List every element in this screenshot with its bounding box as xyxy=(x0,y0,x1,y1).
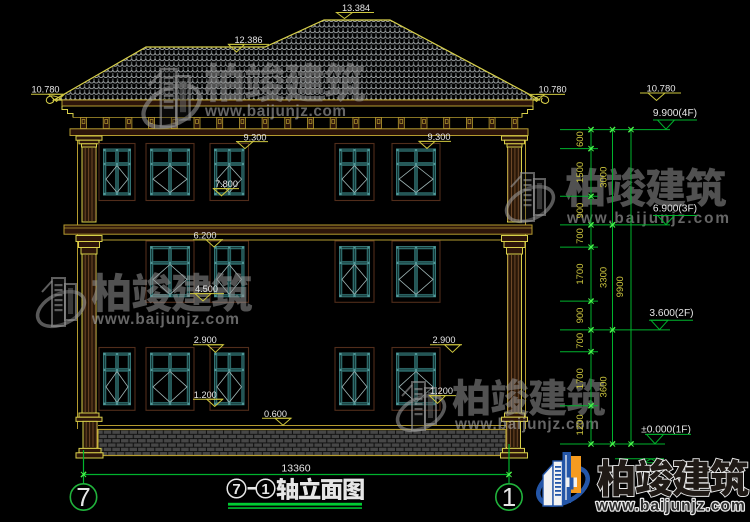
svg-text:13.384: 13.384 xyxy=(342,3,370,13)
svg-text:10.780: 10.780 xyxy=(31,84,59,94)
svg-text:www.baijunjz.com: www.baijunjz.com xyxy=(595,498,746,515)
svg-text:0.600: 0.600 xyxy=(264,409,287,419)
svg-text:13360: 13360 xyxy=(281,463,310,475)
svg-text:2.900: 2.900 xyxy=(433,335,456,345)
svg-text:7.800: 7.800 xyxy=(215,179,238,189)
svg-text:600: 600 xyxy=(575,131,586,147)
svg-text:3000: 3000 xyxy=(599,167,610,188)
svg-text:1.200: 1.200 xyxy=(430,386,453,396)
svg-text:±0.000(1F): ±0.000(1F) xyxy=(641,425,691,436)
svg-text:1500: 1500 xyxy=(575,162,586,183)
svg-text:1700: 1700 xyxy=(575,264,586,285)
svg-text:1: 1 xyxy=(502,482,516,512)
svg-text:12.386: 12.386 xyxy=(234,35,262,45)
svg-text:7: 7 xyxy=(76,482,90,512)
svg-text:900: 900 xyxy=(575,203,586,219)
svg-text:9.300: 9.300 xyxy=(244,132,267,142)
svg-text:700: 700 xyxy=(575,333,586,349)
svg-text:9.300: 9.300 xyxy=(428,132,451,142)
svg-text:2.900: 2.900 xyxy=(194,335,217,345)
svg-text:1: 1 xyxy=(261,481,269,498)
svg-text:3.600(2F): 3.600(2F) xyxy=(649,308,693,319)
svg-text:6.200: 6.200 xyxy=(194,230,217,240)
svg-text:4.500: 4.500 xyxy=(195,284,218,294)
svg-text:1700: 1700 xyxy=(575,368,586,389)
svg-text:900: 900 xyxy=(575,308,586,324)
svg-text:9.900(4F): 9.900(4F) xyxy=(653,108,697,119)
svg-text:9900: 9900 xyxy=(615,276,626,297)
svg-text:3600: 3600 xyxy=(599,376,610,397)
svg-text:www.baijunjz.com: www.baijunjz.com xyxy=(91,311,240,328)
svg-text:10.780: 10.780 xyxy=(539,84,567,94)
svg-text:7: 7 xyxy=(232,481,240,498)
svg-text:1200: 1200 xyxy=(575,414,586,435)
svg-text:www.baijunjz.com: www.baijunjz.com xyxy=(204,103,347,120)
svg-text:3300: 3300 xyxy=(599,267,610,288)
svg-text:6.900(3F): 6.900(3F) xyxy=(653,204,697,215)
svg-text:700: 700 xyxy=(575,228,586,244)
svg-text:1.200: 1.200 xyxy=(194,390,217,400)
